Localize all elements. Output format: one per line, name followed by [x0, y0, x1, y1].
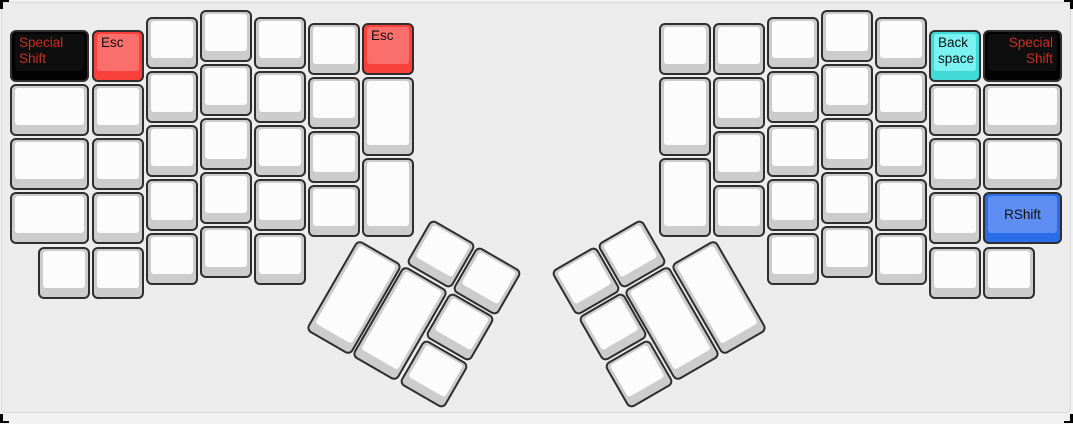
- key-blank[interactable]: [983, 247, 1035, 299]
- key-blank[interactable]: [929, 192, 981, 244]
- key-blank[interactable]: [146, 179, 198, 231]
- key-blank[interactable]: [767, 179, 819, 231]
- key-blank[interactable]: [200, 226, 252, 278]
- key-top: [97, 88, 139, 125]
- key-label: RShift: [1004, 207, 1041, 223]
- key-top: [259, 129, 301, 166]
- key-top: Esc: [367, 27, 409, 64]
- key-blank[interactable]: [821, 64, 873, 116]
- key-blank[interactable]: [875, 179, 927, 231]
- key-top: [934, 88, 976, 125]
- key-blank[interactable]: [875, 17, 927, 69]
- key-top: [313, 135, 355, 172]
- key-blank[interactable]: [929, 247, 981, 299]
- key-blank[interactable]: [200, 64, 252, 116]
- key-blank[interactable]: [659, 23, 711, 75]
- key-top: [880, 129, 922, 166]
- key-top: [988, 88, 1057, 125]
- keys-layer: Special ShiftEscEscBack spaceSpecial Shi…: [0, 0, 1073, 424]
- key-top: [151, 183, 193, 220]
- key-blank[interactable]: [821, 118, 873, 170]
- key-top: [664, 162, 706, 226]
- key-top: [772, 21, 814, 58]
- key-top: [880, 237, 922, 274]
- key-top: [718, 135, 760, 172]
- key-blank[interactable]: [92, 84, 144, 136]
- key-blank[interactable]: [146, 233, 198, 285]
- key-top: [826, 122, 868, 159]
- key-top: [664, 81, 706, 145]
- key-top: [367, 162, 409, 226]
- key-top: [772, 129, 814, 166]
- key-blank[interactable]: [308, 23, 360, 75]
- key-top: [880, 183, 922, 220]
- key-label: Special Shift: [19, 35, 80, 67]
- key-blank[interactable]: [875, 125, 927, 177]
- key-top: [367, 81, 409, 145]
- key-special-shift-right[interactable]: Special Shift: [983, 30, 1062, 82]
- key-top: [259, 75, 301, 112]
- key-blank[interactable]: [713, 131, 765, 183]
- key-top: Esc: [97, 34, 139, 71]
- key-top: [988, 251, 1030, 288]
- key-blank[interactable]: [929, 84, 981, 136]
- key-top: [259, 21, 301, 58]
- key-top: [826, 14, 868, 51]
- key-blank[interactable]: [767, 125, 819, 177]
- key-top: [15, 88, 84, 125]
- key-top: [880, 75, 922, 112]
- key-blank[interactable]: [200, 172, 252, 224]
- key-blank[interactable]: [821, 226, 873, 278]
- key-top: [15, 196, 84, 233]
- key-esc-left[interactable]: Esc: [92, 30, 144, 82]
- key-top: [826, 230, 868, 267]
- key-label: Esc: [371, 28, 394, 44]
- key-backspace[interactable]: Back space: [929, 30, 981, 82]
- key-label: Back space: [938, 35, 972, 67]
- key-top: [313, 81, 355, 118]
- key-top: [151, 75, 193, 112]
- key-blank[interactable]: [92, 247, 144, 299]
- key-blank[interactable]: [146, 17, 198, 69]
- key-top: [15, 142, 84, 179]
- key-top: [151, 21, 193, 58]
- key-blank[interactable]: [362, 77, 414, 156]
- key-blank[interactable]: [200, 10, 252, 62]
- key-top: [718, 81, 760, 118]
- key-blank[interactable]: [983, 84, 1062, 136]
- key-blank[interactable]: [713, 23, 765, 75]
- key-top: [151, 129, 193, 166]
- key-blank[interactable]: [767, 71, 819, 123]
- key-blank[interactable]: [875, 71, 927, 123]
- key-top: [151, 237, 193, 274]
- key-blank[interactable]: [821, 10, 873, 62]
- key-blank[interactable]: [10, 84, 89, 136]
- key-blank[interactable]: [659, 77, 711, 156]
- key-top: [205, 230, 247, 267]
- key-blank[interactable]: [767, 17, 819, 69]
- key-top: [43, 251, 85, 288]
- key-top: [826, 68, 868, 105]
- key-top: [205, 14, 247, 51]
- key-blank[interactable]: [38, 247, 90, 299]
- key-blank[interactable]: [875, 233, 927, 285]
- key-top: RShift: [988, 196, 1057, 233]
- key-top: [664, 27, 706, 64]
- key-top: [826, 176, 868, 213]
- key-top: [772, 183, 814, 220]
- key-top: [461, 251, 516, 304]
- key-blank[interactable]: [308, 77, 360, 129]
- key-blank[interactable]: [200, 118, 252, 170]
- key-top: [718, 189, 760, 226]
- key-top: [97, 251, 139, 288]
- key-blank[interactable]: [92, 192, 144, 244]
- key-blank[interactable]: [254, 71, 306, 123]
- key-blank[interactable]: [254, 233, 306, 285]
- key-top: [313, 27, 355, 64]
- key-esc-inner-left[interactable]: Esc: [362, 23, 414, 75]
- key-top: [880, 21, 922, 58]
- key-top: [772, 75, 814, 112]
- key-blank[interactable]: [362, 158, 414, 237]
- key-top: [205, 68, 247, 105]
- key-blank[interactable]: [10, 138, 89, 190]
- key-special-shift-left[interactable]: Special Shift: [10, 30, 89, 82]
- key-blank[interactable]: [254, 125, 306, 177]
- key-top: [97, 142, 139, 179]
- key-top: [772, 237, 814, 274]
- key-blank[interactable]: [713, 185, 765, 237]
- key-label: Special Shift: [992, 35, 1053, 67]
- key-top: [259, 237, 301, 274]
- key-top: [259, 183, 301, 220]
- key-blank[interactable]: [254, 179, 306, 231]
- key-top: [205, 176, 247, 213]
- key-blank[interactable]: [308, 131, 360, 183]
- key-blank[interactable]: [146, 71, 198, 123]
- key-blank[interactable]: [983, 138, 1062, 190]
- key-top: [415, 224, 470, 277]
- key-top: [313, 189, 355, 226]
- key-label: Esc: [101, 35, 124, 51]
- key-top: [557, 251, 612, 304]
- key-top: [205, 122, 247, 159]
- key-top: [934, 142, 976, 179]
- key-blank[interactable]: [146, 125, 198, 177]
- key-blank[interactable]: [254, 17, 306, 69]
- key-blank[interactable]: [659, 158, 711, 237]
- key-blank[interactable]: [929, 138, 981, 190]
- key-top: [718, 27, 760, 64]
- key-top: [988, 142, 1057, 179]
- key-top: [97, 196, 139, 233]
- key-rshift[interactable]: RShift: [983, 192, 1062, 244]
- key-blank[interactable]: [308, 185, 360, 237]
- key-blank[interactable]: [767, 233, 819, 285]
- key-top: [934, 251, 976, 288]
- key-top: Special Shift: [988, 34, 1057, 71]
- key-blank[interactable]: [92, 138, 144, 190]
- key-top: Special Shift: [15, 34, 84, 71]
- key-blank[interactable]: [10, 192, 89, 244]
- key-top: [603, 224, 658, 277]
- key-blank[interactable]: [713, 77, 765, 129]
- key-top: [934, 196, 976, 233]
- key-top: Back space: [934, 34, 976, 71]
- keyboard-layout-canvas: Special ShiftEscEscBack spaceSpecial Shi…: [0, 0, 1073, 424]
- key-blank[interactable]: [821, 172, 873, 224]
